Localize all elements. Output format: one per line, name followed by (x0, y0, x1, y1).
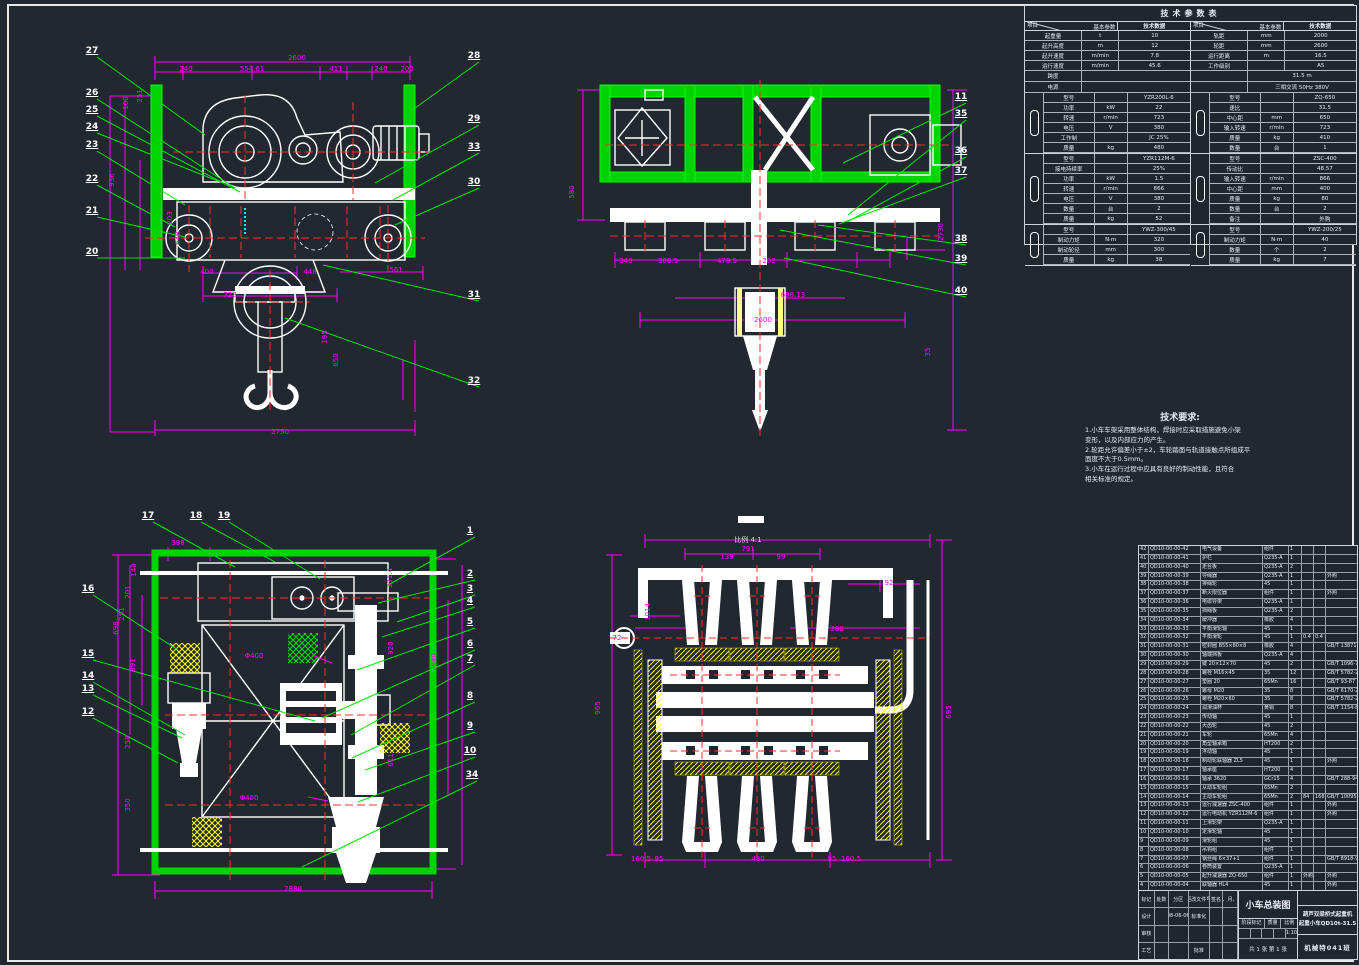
dimension-label: 331.4 (386, 568, 394, 588)
dimension-label: 480 (751, 855, 764, 863)
leader-line-14 (93, 682, 185, 735)
balloon-34: 34 (466, 770, 479, 780)
balloon-27: 27 (86, 46, 99, 56)
leader-line-11 (843, 103, 966, 163)
dimension-label: 160.5 (631, 855, 651, 863)
leader-line-1 (388, 537, 475, 585)
balloon-26: 26 (86, 88, 99, 98)
balloon-21: 21 (86, 206, 99, 216)
leader-line-5 (357, 628, 475, 670)
balloon-36: 36 (955, 146, 968, 156)
dimension-label: 478.5 (717, 257, 737, 265)
balloon-1: 1 (467, 526, 473, 536)
leader-line-35 (848, 120, 966, 215)
dimension-label: 580 (568, 185, 576, 198)
leader-line-36 (847, 157, 966, 222)
dimension-label: 2640 (430, 653, 438, 671)
dimension-label: 286 (830, 625, 843, 633)
balloon-23: 23 (86, 140, 99, 150)
dimension-label: 258 (124, 735, 132, 748)
dimension-label: 2750 (271, 428, 289, 436)
dimension-label: 99 (777, 553, 786, 561)
dimension-label: 35 (924, 348, 932, 357)
balloon-16: 16 (82, 584, 95, 594)
leader-line-16 (93, 595, 178, 650)
dimension-label: Φ400 (245, 652, 264, 660)
dimension-label: 648 (174, 231, 182, 244)
balloon-22: 22 (86, 174, 99, 184)
balloon-18: 18 (190, 511, 203, 521)
dimension-label: 95 (828, 855, 837, 863)
dimension-label: 139 (720, 553, 733, 561)
balloon-40: 40 (955, 286, 968, 296)
balloon-39: 39 (955, 254, 968, 264)
view-scale-caption: 比例 4:1 (734, 535, 762, 545)
leader-line-32 (285, 318, 479, 387)
dimension-label: 201 (124, 585, 132, 598)
dimension-label: 554.61 (240, 65, 265, 73)
balloon-29: 29 (468, 114, 481, 124)
dimension-label: 92 (885, 579, 894, 587)
dimension-label: 203 (166, 211, 174, 224)
balloon-5: 5 (467, 617, 473, 627)
dimension-label: 240 (374, 65, 387, 73)
balloon-14: 14 (82, 671, 95, 681)
dimension-label: 2600 (288, 54, 306, 62)
dimension-label: 400 (200, 268, 213, 276)
dimension-label: Φ400 (240, 794, 259, 802)
balloon-7: 7 (467, 654, 473, 664)
leader-line-37 (839, 177, 966, 224)
balloon-10: 10 (464, 746, 477, 756)
balloon-24: 24 (86, 122, 99, 132)
leader-line-34 (302, 781, 477, 867)
dimension-label: 698.13 (781, 291, 806, 299)
dimension-label: 1014 (644, 603, 652, 621)
dimension-label: 411 (329, 65, 342, 73)
leader-line-15 (93, 660, 315, 721)
dimension-label: 398 (171, 539, 184, 547)
balloon-38: 38 (955, 234, 968, 244)
leader-line-29 (375, 125, 479, 183)
balloon-33: 33 (468, 142, 481, 152)
balloon-19: 19 (218, 511, 231, 521)
dimension-label: 200 (400, 65, 413, 73)
balloon-17: 17 (142, 511, 155, 521)
cad-drawing-canvas: 技术参数表 项目基本参数技术数据起重量t10起升高度m12起升速度m/min7.… (0, 0, 1359, 965)
dimension-label: 791 (741, 545, 754, 553)
balloon-2: 2 (467, 569, 473, 579)
balloon-20: 20 (86, 247, 99, 257)
balloon-15: 15 (82, 649, 95, 659)
balloon-leaders (0, 0, 1359, 965)
balloon-4: 4 (467, 596, 473, 606)
leader-line-12 (93, 718, 178, 763)
leader-line-17 (153, 522, 235, 567)
leader-line-7 (351, 665, 475, 735)
balloon-30: 30 (468, 177, 481, 187)
dimension-label: 2600 (754, 316, 772, 324)
dimension-label: 448 (303, 268, 316, 276)
leader-line-19 (229, 522, 320, 579)
dimension-label: 695 (945, 705, 953, 718)
dimension-label: 728 (223, 291, 236, 299)
leader-line-30 (395, 188, 479, 225)
dimension-label: 100 (122, 96, 130, 109)
balloon-28: 28 (468, 51, 481, 61)
balloon-12: 12 (82, 707, 95, 717)
leader-line-40 (784, 258, 966, 297)
leader-line-25 (97, 116, 240, 192)
balloon-3: 3 (467, 584, 473, 594)
balloon-35: 35 (955, 109, 968, 119)
dimension-label: 251 (136, 89, 144, 102)
dimension-label: 195 (321, 330, 329, 343)
leader-line-8 (352, 702, 475, 758)
dimension-label: 240 (179, 65, 192, 73)
dimension-label: 95 (655, 855, 664, 863)
dimension-label: 140 (130, 563, 138, 576)
dimension-label: 251 (118, 607, 126, 620)
dimension-label: 2730 (937, 223, 945, 241)
leader-line-3 (397, 595, 475, 622)
balloon-37: 37 (955, 166, 968, 176)
dimension-label: 202 (762, 257, 775, 265)
dimension-label: 650 (332, 353, 340, 366)
dimension-label: 891 (129, 658, 137, 671)
balloon-8: 8 (467, 691, 473, 701)
dimension-label: 340 (619, 257, 632, 265)
leader-line-28 (411, 62, 479, 111)
dimension-label: 936 (108, 173, 116, 186)
dimension-label: 965 (594, 701, 602, 714)
dimension-label: 350 (124, 798, 132, 811)
dimension-label: 920 (387, 641, 395, 654)
balloon-9: 9 (467, 721, 473, 731)
leader-line-33 (393, 153, 479, 200)
leader-line-13 (93, 695, 182, 738)
balloon-32: 32 (468, 376, 481, 386)
dimension-label: 386.5 (658, 257, 678, 265)
balloon-11: 11 (955, 92, 968, 102)
leader-line-10 (358, 757, 475, 802)
leader-line-26 (97, 99, 235, 188)
dimension-label: 561 (389, 266, 402, 274)
balloon-6: 6 (467, 639, 473, 649)
balloon-13: 13 (82, 684, 95, 694)
dimension-label: 698 (112, 621, 120, 634)
dimension-label: 160.5 (841, 855, 861, 863)
dimension-label: 611 (387, 753, 395, 766)
balloon-25: 25 (86, 105, 99, 115)
balloon-31: 31 (468, 290, 481, 300)
dimension-label: 72 (613, 634, 622, 642)
dimension-label: 2880 (284, 885, 302, 893)
leader-line-9 (365, 732, 475, 770)
